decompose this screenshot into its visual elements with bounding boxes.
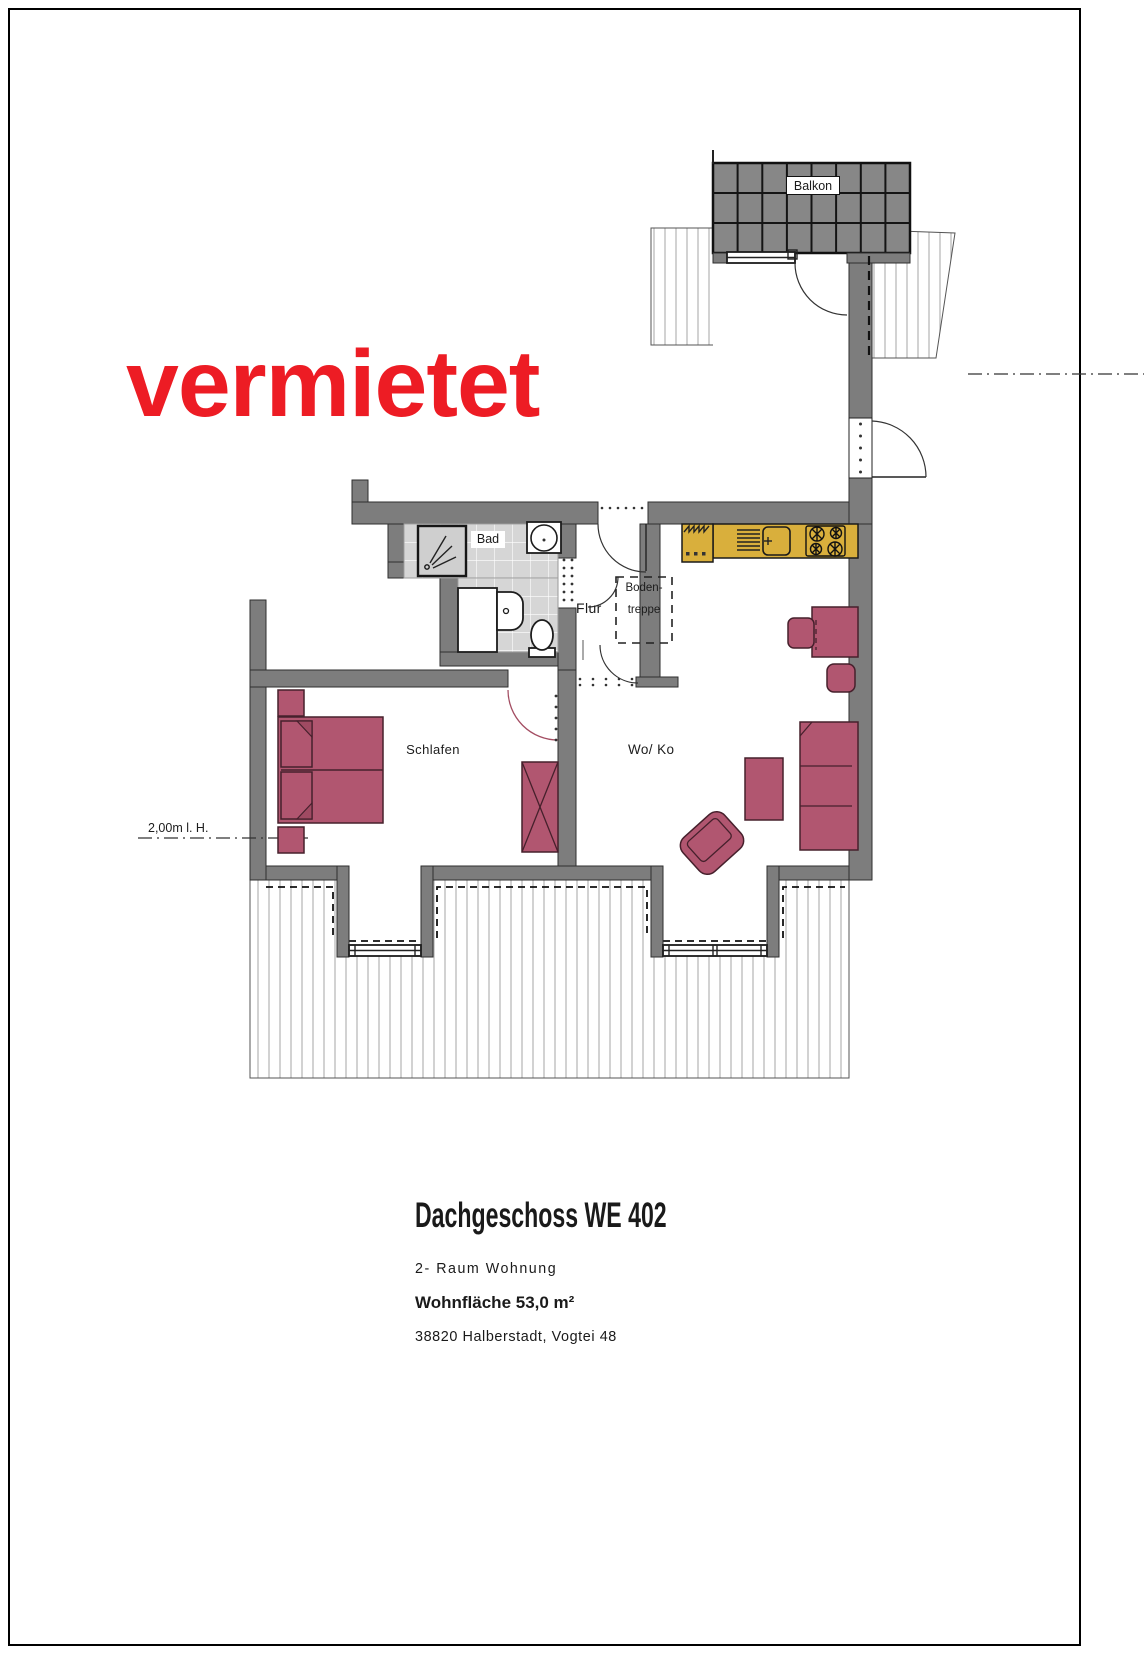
bidet <box>497 592 523 630</box>
label-bad: Bad <box>471 531 505 548</box>
nightstand-bottom <box>278 827 304 853</box>
right-exterior-door <box>849 418 926 478</box>
kitchen-tall-unit <box>682 524 713 562</box>
dormer-1-interior <box>349 880 421 945</box>
info-title: Dachgeschoss WE 402 <box>415 1196 667 1236</box>
washbasin <box>527 522 561 553</box>
balcony-window <box>727 250 797 263</box>
bathtub <box>458 588 497 652</box>
bathroom-door-opening <box>563 559 574 602</box>
double-bed <box>278 717 383 823</box>
desk <box>812 607 858 657</box>
dormer-window-2 <box>663 945 767 956</box>
label-ceiling-height: 2,00m l. H. <box>148 821 208 835</box>
label-bodentreppe-1: Boden- <box>616 582 672 594</box>
balcony-door-swing <box>795 252 847 315</box>
toilet <box>529 620 555 657</box>
stool <box>827 664 855 692</box>
dormer-2-interior <box>663 880 767 945</box>
floorplan-page: vermietet Balkon Bad Flur Boden- treppe … <box>0 0 1144 1656</box>
desk-chair <box>788 618 814 648</box>
coffee-table <box>745 758 783 820</box>
roof-hatch-top-left <box>651 228 713 345</box>
bedroom-furniture <box>278 690 558 853</box>
bedroom-door-swing <box>508 690 558 741</box>
label-balkon: Balkon <box>786 176 840 195</box>
armchair <box>676 807 748 879</box>
info-subtitle: 2- Raum Wohnung <box>415 1260 777 1277</box>
label-schlafen: Schlafen <box>398 742 468 757</box>
info-block: Dachgeschoss WE 402 2- Raum Wohnung Wohn… <box>415 1196 796 1345</box>
label-flur: Flur <box>576 600 602 616</box>
sofa <box>800 722 858 850</box>
dormer-window-1 <box>349 945 421 956</box>
info-area: Wohnfläche 53,0 m² <box>415 1293 796 1313</box>
kitchen-counter <box>682 524 858 562</box>
hall-to-living-passage <box>579 645 638 686</box>
label-bodentreppe-2: treppe <box>616 604 672 616</box>
living-furniture <box>676 607 858 879</box>
shower <box>418 526 466 576</box>
info-address: 38820 Halberstadt, Vogtei 48 <box>415 1328 781 1345</box>
wardrobe <box>522 762 558 852</box>
vermietet-stamp: vermietet <box>126 330 539 439</box>
label-woko: Wo/ Ko <box>628 742 674 757</box>
nightstand-top <box>278 690 304 716</box>
entrance-door <box>598 507 646 572</box>
